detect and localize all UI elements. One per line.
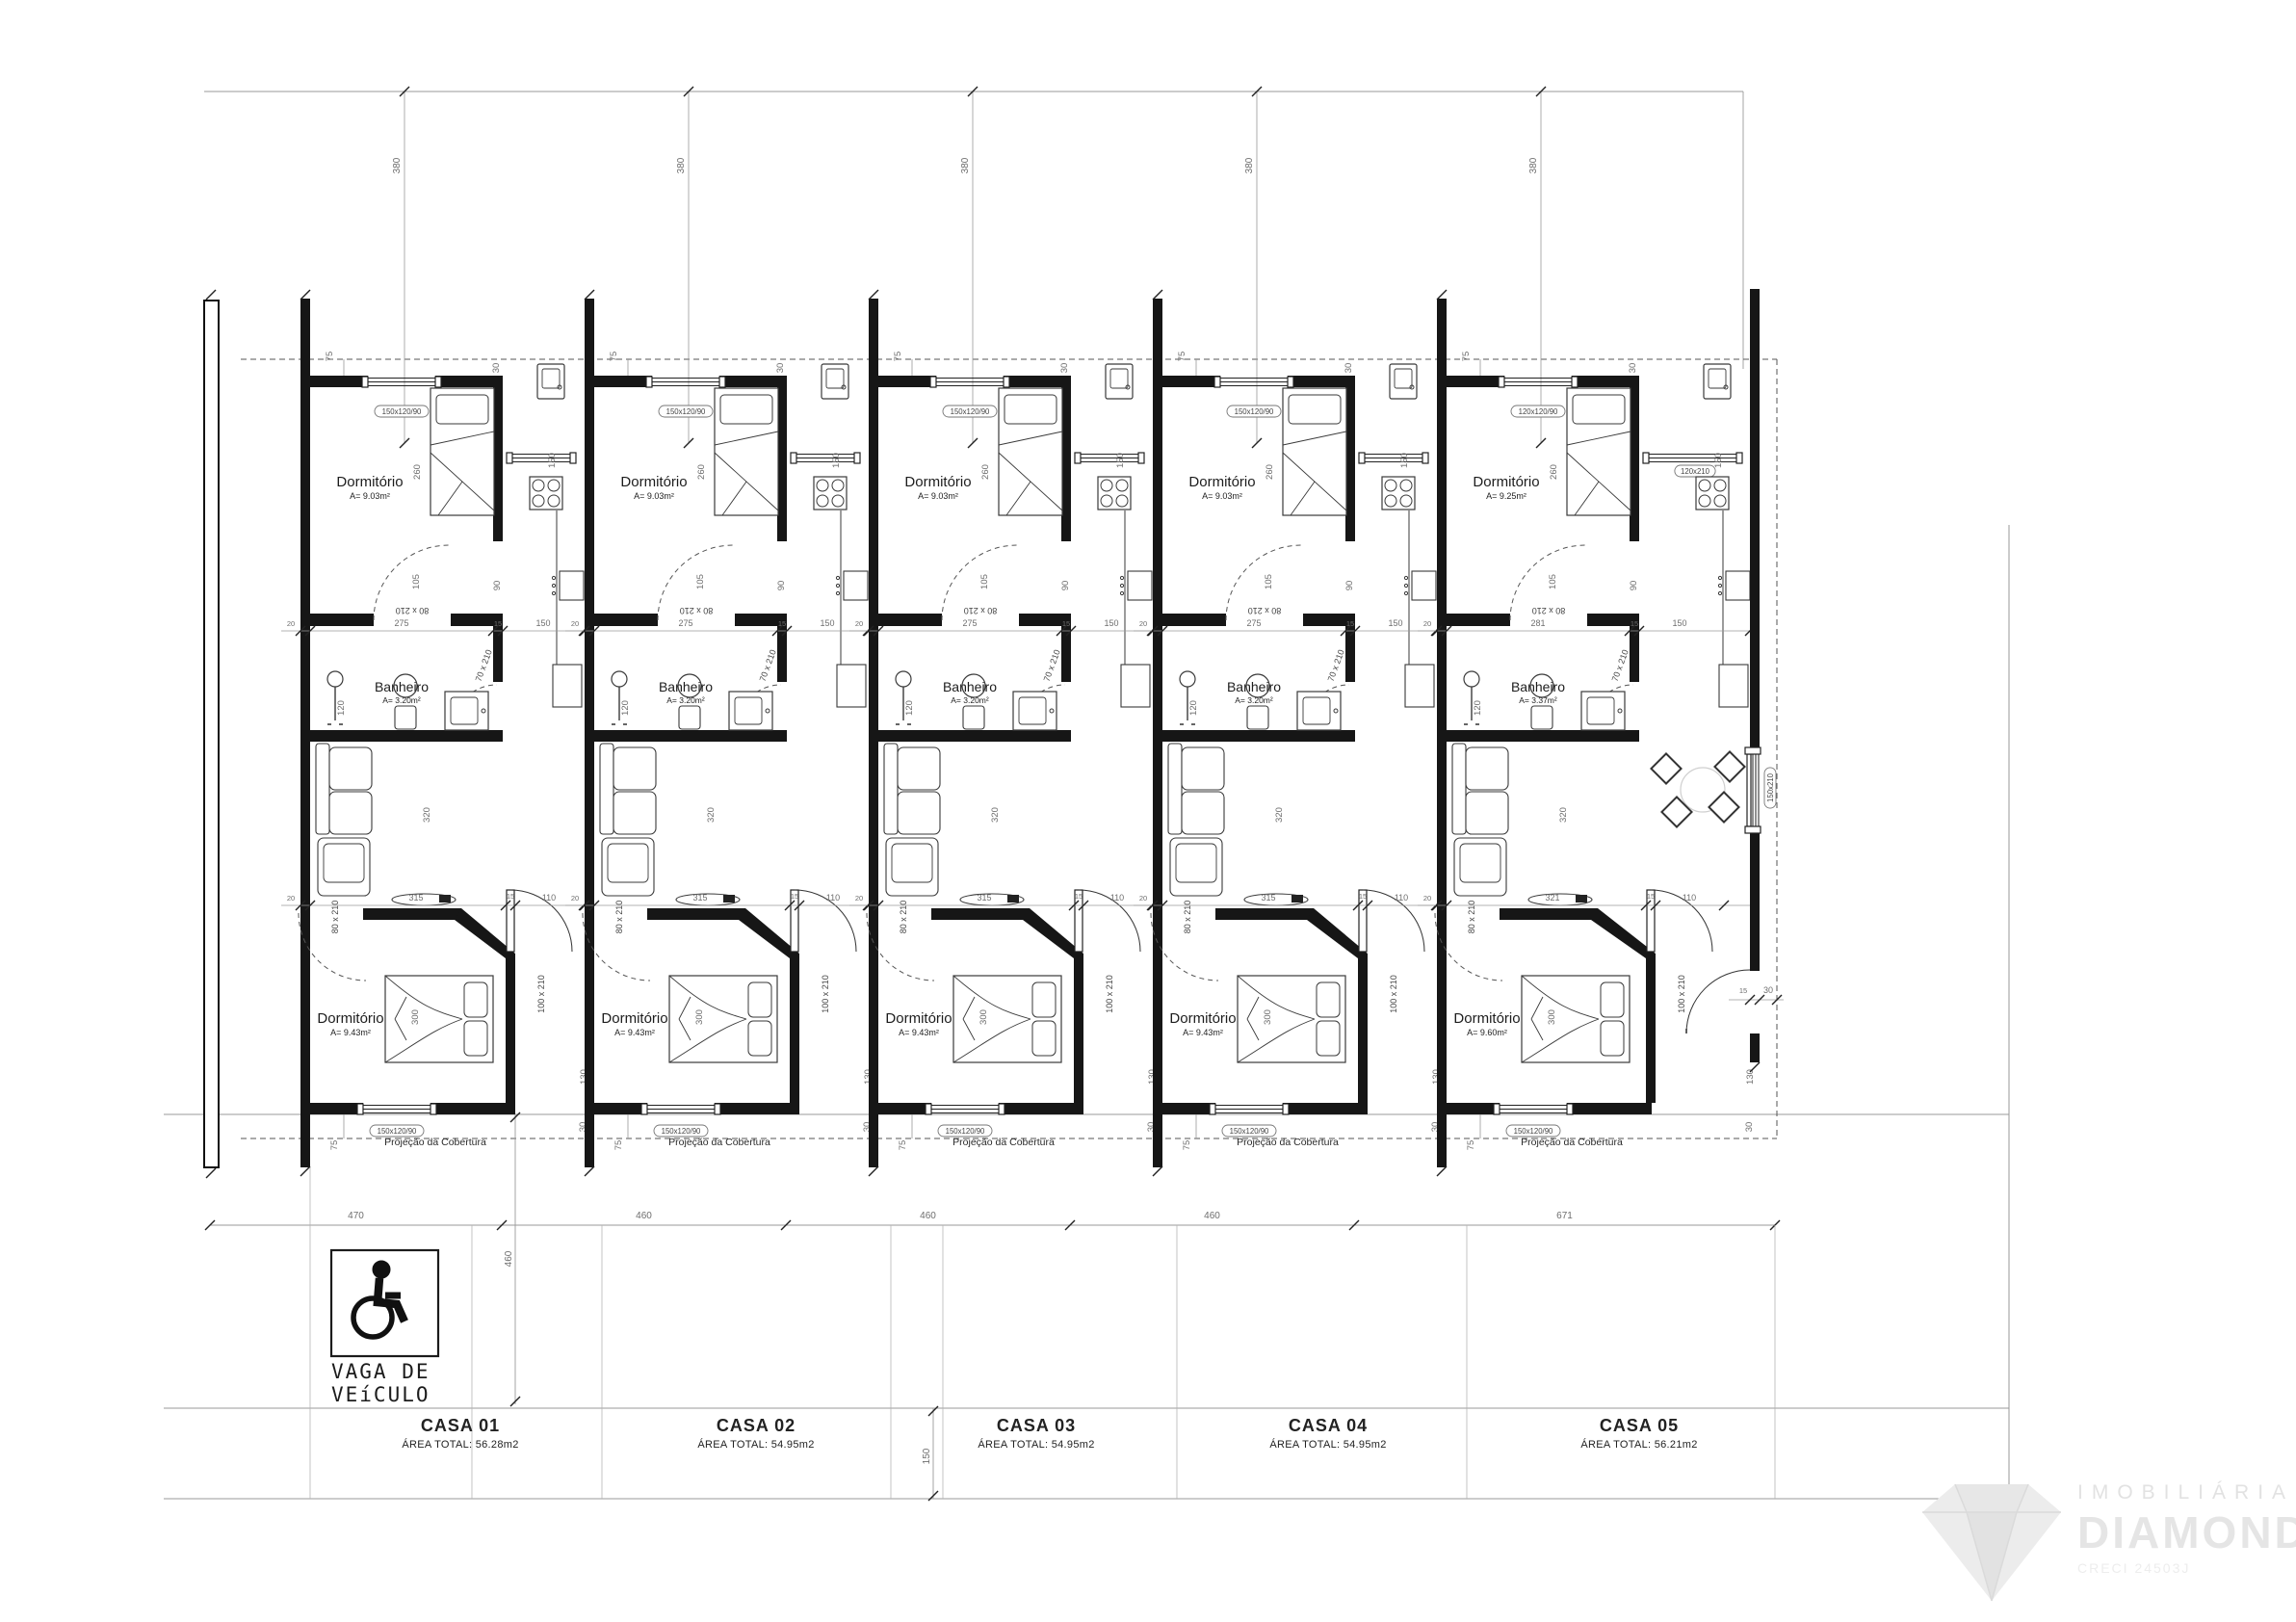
svg-text:30: 30 <box>775 363 786 374</box>
svg-text:20: 20 <box>571 894 579 903</box>
svg-text:100 x 210: 100 x 210 <box>536 975 546 1013</box>
diamond-gem-icon <box>1912 1472 2075 1616</box>
svg-text:300: 300 <box>410 1009 421 1025</box>
svg-text:80 x 210: 80 x 210 <box>1532 606 1566 615</box>
svg-text:100 x 210: 100 x 210 <box>821 975 830 1013</box>
svg-text:321: 321 <box>1545 893 1559 903</box>
casa-04-label: CASA 04 ÁREA TOTAL: 54.95m2 <box>1269 1416 1386 1451</box>
svg-text:671: 671 <box>1556 1211 1573 1221</box>
svg-text:110: 110 <box>542 893 556 903</box>
svg-text:Projeção da Cobertura: Projeção da Cobertura <box>1521 1137 1623 1148</box>
svg-text:75: 75 <box>1182 1140 1192 1151</box>
svg-text:Projeção da Cobertura: Projeção da Cobertura <box>668 1137 770 1148</box>
svg-text:Dormitório: Dormitório <box>620 474 687 490</box>
svg-text:70 x 210: 70 x 210 <box>758 648 778 683</box>
svg-text:80 x 210: 80 x 210 <box>1248 606 1282 615</box>
casa-05-label: CASA 05 ÁREA TOTAL: 56.21m2 <box>1580 1416 1697 1451</box>
svg-text:300: 300 <box>1263 1009 1273 1025</box>
svg-text:120: 120 <box>904 700 915 716</box>
svg-text:150: 150 <box>535 618 550 628</box>
svg-text:70 x 210: 70 x 210 <box>1610 648 1631 683</box>
svg-text:A= 9.03m²: A= 9.03m² <box>350 491 390 501</box>
casa-03-name: CASA 03 <box>978 1416 1094 1436</box>
floorplan-canvas: 470460460460671460150380150x120/90150x12… <box>0 0 2296 1622</box>
svg-text:30: 30 <box>1763 985 1773 995</box>
svg-text:A= 9.43m²: A= 9.43m² <box>1183 1028 1223 1037</box>
svg-text:75: 75 <box>1461 352 1472 362</box>
svg-text:281: 281 <box>1530 618 1545 628</box>
svg-text:15: 15 <box>1062 619 1070 628</box>
svg-text:A= 9.60m²: A= 9.60m² <box>1467 1028 1507 1037</box>
svg-text:275: 275 <box>394 618 408 628</box>
svg-text:80 x 210: 80 x 210 <box>964 606 998 615</box>
svg-text:275: 275 <box>962 618 977 628</box>
svg-text:Projeção da Cobertura: Projeção da Cobertura <box>952 1137 1055 1148</box>
svg-text:80 x 210: 80 x 210 <box>680 606 714 615</box>
svg-text:15: 15 <box>1346 619 1354 628</box>
svg-text:A= 9.43m²: A= 9.43m² <box>899 1028 939 1037</box>
svg-text:150: 150 <box>922 1448 932 1464</box>
casa-04-plan: 380150x120/90150x120/9080 x 21070 x 2108… <box>1134 87 1442 1176</box>
svg-text:75: 75 <box>609 352 619 362</box>
parking-sign-text: VAGA DE VEíCULO <box>331 1360 447 1406</box>
svg-text:105: 105 <box>1264 574 1274 589</box>
parking-sign-line1: VAGA DE <box>331 1360 447 1383</box>
svg-text:Dormitório: Dormitório <box>1453 1010 1520 1027</box>
casa-01-area: ÁREA TOTAL: 56.28m2 <box>402 1439 518 1451</box>
svg-text:320: 320 <box>990 807 1001 823</box>
casa-05-side-extras: 150x2101530 <box>1651 289 1784 1072</box>
svg-text:80 x 210: 80 x 210 <box>396 606 430 615</box>
svg-text:300: 300 <box>978 1009 989 1025</box>
svg-text:30: 30 <box>1744 1122 1755 1133</box>
casa-02-area: ÁREA TOTAL: 54.95m2 <box>697 1439 814 1451</box>
svg-text:15: 15 <box>1075 892 1083 901</box>
svg-text:150: 150 <box>1388 618 1402 628</box>
svg-text:150x120/90: 150x120/90 <box>382 407 422 416</box>
svg-text:30: 30 <box>1344 363 1354 374</box>
svg-text:20: 20 <box>571 619 579 628</box>
svg-text:315: 315 <box>1261 893 1275 903</box>
svg-text:150: 150 <box>831 453 842 468</box>
casa-05-area: ÁREA TOTAL: 56.21m2 <box>1580 1439 1697 1451</box>
svg-text:320: 320 <box>706 807 717 823</box>
casa-01-plan: 380150x120/90150x120/9080 x 21070 x 2108… <box>281 87 589 1176</box>
svg-text:Banheiro: Banheiro <box>659 679 713 694</box>
svg-text:470: 470 <box>348 1211 364 1221</box>
svg-text:30: 30 <box>1628 363 1638 374</box>
svg-text:30: 30 <box>1059 363 1070 374</box>
svg-text:110: 110 <box>1683 893 1696 903</box>
casa-04-name: CASA 04 <box>1269 1416 1386 1436</box>
svg-text:20: 20 <box>855 619 863 628</box>
svg-text:120: 120 <box>336 700 347 716</box>
svg-text:Banheiro: Banheiro <box>943 679 997 694</box>
svg-text:380: 380 <box>960 157 971 173</box>
svg-text:120x120/90: 120x120/90 <box>1519 407 1558 416</box>
svg-text:320: 320 <box>422 807 432 823</box>
svg-text:100 x 210: 100 x 210 <box>1677 975 1686 1013</box>
svg-text:20: 20 <box>1423 619 1431 628</box>
svg-text:Dormitório: Dormitório <box>1169 1010 1236 1027</box>
svg-text:Dormitório: Dormitório <box>1188 474 1255 490</box>
svg-text:460: 460 <box>636 1211 652 1221</box>
casa-01-name: CASA 01 <box>402 1416 518 1436</box>
svg-text:70 x 210: 70 x 210 <box>1042 648 1062 683</box>
svg-text:150: 150 <box>1104 618 1118 628</box>
svg-text:260: 260 <box>696 464 707 480</box>
svg-text:260: 260 <box>1265 464 1275 480</box>
svg-text:380: 380 <box>392 157 403 173</box>
svg-text:380: 380 <box>676 157 687 173</box>
svg-text:150x120/90: 150x120/90 <box>946 1127 985 1136</box>
svg-text:150x120/90: 150x120/90 <box>1235 407 1274 416</box>
svg-text:105: 105 <box>1548 574 1558 589</box>
svg-text:300: 300 <box>694 1009 705 1025</box>
svg-text:260: 260 <box>980 464 991 480</box>
svg-text:30: 30 <box>491 363 502 374</box>
svg-text:Dormitório: Dormitório <box>601 1010 667 1027</box>
svg-text:120: 120 <box>620 700 631 716</box>
svg-text:260: 260 <box>412 464 423 480</box>
svg-text:A= 9.43m²: A= 9.43m² <box>330 1028 371 1037</box>
svg-text:75: 75 <box>898 1140 908 1151</box>
logo-diamond-text: DIAMOND <box>2077 1506 2296 1558</box>
svg-text:A= 9.03m²: A= 9.03m² <box>1202 491 1242 501</box>
svg-text:75: 75 <box>1466 1140 1476 1151</box>
svg-text:150x120/90: 150x120/90 <box>951 407 990 416</box>
casa-03-label: CASA 03 ÁREA TOTAL: 54.95m2 <box>978 1416 1094 1451</box>
svg-text:150x120/90: 150x120/90 <box>378 1127 417 1136</box>
svg-text:150: 150 <box>820 618 834 628</box>
svg-text:105: 105 <box>979 574 990 589</box>
svg-text:70 x 210: 70 x 210 <box>1326 648 1346 683</box>
svg-text:15: 15 <box>1647 892 1655 901</box>
svg-text:15: 15 <box>1739 986 1747 995</box>
svg-text:320: 320 <box>1274 807 1285 823</box>
svg-text:Banheiro: Banheiro <box>375 679 429 694</box>
casa-04-area: ÁREA TOTAL: 54.95m2 <box>1269 1439 1386 1451</box>
svg-text:75: 75 <box>329 1140 340 1151</box>
svg-text:380: 380 <box>1244 157 1255 173</box>
svg-text:20: 20 <box>287 619 295 628</box>
svg-text:150x120/90: 150x120/90 <box>1514 1127 1553 1136</box>
svg-text:120: 120 <box>1473 700 1483 716</box>
svg-text:105: 105 <box>695 574 706 589</box>
casa-05-name: CASA 05 <box>1580 1416 1697 1436</box>
svg-text:105: 105 <box>411 574 422 589</box>
svg-text:A= 9.03m²: A= 9.03m² <box>918 491 958 501</box>
svg-text:320: 320 <box>1558 807 1569 823</box>
svg-text:20: 20 <box>1139 619 1147 628</box>
svg-text:110: 110 <box>1110 893 1124 903</box>
svg-text:A= 9.25m²: A= 9.25m² <box>1486 491 1526 501</box>
casa-01-label: CASA 01 ÁREA TOTAL: 56.28m2 <box>402 1416 518 1451</box>
diamond-logo: IMOBILIÁRIA DIAMOND CRECI 24503J <box>1912 1472 2296 1616</box>
svg-text:75: 75 <box>1177 352 1187 362</box>
svg-text:460: 460 <box>504 1250 514 1267</box>
svg-text:90: 90 <box>1629 581 1639 591</box>
svg-text:100 x 210: 100 x 210 <box>1105 975 1114 1013</box>
svg-text:100 x 210: 100 x 210 <box>1389 975 1398 1013</box>
svg-text:120x210: 120x210 <box>1681 467 1710 476</box>
svg-text:260: 260 <box>1549 464 1559 480</box>
svg-text:300: 300 <box>1547 1009 1557 1025</box>
svg-text:A= 9.43m²: A= 9.43m² <box>614 1028 655 1037</box>
svg-text:15: 15 <box>791 892 798 901</box>
svg-text:70 x 210: 70 x 210 <box>474 648 494 683</box>
svg-text:150: 150 <box>1115 453 1126 468</box>
svg-text:90: 90 <box>492 581 503 591</box>
svg-text:150x120/90: 150x120/90 <box>666 407 706 416</box>
svg-text:15: 15 <box>1359 892 1367 901</box>
svg-text:75: 75 <box>325 352 335 362</box>
svg-text:150x120/90: 150x120/90 <box>662 1127 701 1136</box>
svg-text:90: 90 <box>1344 581 1355 591</box>
parking-sign-line2: VEíCULO <box>331 1383 447 1406</box>
svg-text:Banheiro: Banheiro <box>1511 679 1565 694</box>
casa-02-plan: 380150x120/90150x120/9080 x 21070 x 2108… <box>565 87 874 1176</box>
svg-text:Dormitório: Dormitório <box>336 474 403 490</box>
svg-text:Dormitório: Dormitório <box>885 1010 952 1027</box>
svg-text:20: 20 <box>1139 894 1147 903</box>
svg-text:Dormitório: Dormitório <box>904 474 971 490</box>
svg-text:120: 120 <box>1188 700 1199 716</box>
casa-03-plan: 380150x120/90150x120/9080 x 21070 x 2108… <box>849 87 1158 1176</box>
svg-text:75: 75 <box>893 352 903 362</box>
svg-text:Dormitório: Dormitório <box>317 1010 383 1027</box>
svg-text:315: 315 <box>692 893 707 903</box>
svg-text:315: 315 <box>408 893 423 903</box>
svg-text:A= 9.03m²: A= 9.03m² <box>634 491 674 501</box>
svg-text:150: 150 <box>1713 453 1724 468</box>
svg-text:150: 150 <box>547 453 558 468</box>
svg-text:20: 20 <box>855 894 863 903</box>
logo-creci-text: CRECI 24503J <box>2077 1560 2296 1576</box>
svg-text:20: 20 <box>287 894 295 903</box>
svg-text:380: 380 <box>1528 157 1539 173</box>
svg-text:460: 460 <box>920 1211 936 1221</box>
svg-text:Banheiro: Banheiro <box>1227 679 1281 694</box>
svg-text:110: 110 <box>826 893 840 903</box>
svg-text:460: 460 <box>1204 1211 1220 1221</box>
svg-text:275: 275 <box>678 618 692 628</box>
svg-text:15: 15 <box>778 619 786 628</box>
svg-text:15: 15 <box>1631 619 1638 628</box>
casa-05-plan: 380120x120/90150x120/90120x21080 x 21070… <box>1418 87 1756 1176</box>
svg-text:150x120/90: 150x120/90 <box>1230 1127 1269 1136</box>
svg-text:110: 110 <box>1395 893 1408 903</box>
svg-text:15: 15 <box>507 892 514 901</box>
svg-text:150: 150 <box>1672 618 1686 628</box>
svg-text:Projeção da Cobertura: Projeção da Cobertura <box>384 1137 486 1148</box>
svg-text:20: 20 <box>1423 894 1431 903</box>
logo-imobiliaria-text: IMOBILIÁRIA <box>2077 1481 2296 1504</box>
svg-text:90: 90 <box>776 581 787 591</box>
svg-text:315: 315 <box>977 893 991 903</box>
svg-text:15: 15 <box>494 619 502 628</box>
svg-text:90: 90 <box>1060 581 1071 591</box>
casa-03-area: ÁREA TOTAL: 54.95m2 <box>978 1439 1094 1451</box>
casa-02-label: CASA 02 ÁREA TOTAL: 54.95m2 <box>697 1416 814 1451</box>
svg-text:Dormitório: Dormitório <box>1473 474 1539 490</box>
svg-text:150x210: 150x210 <box>1766 772 1775 802</box>
svg-text:150: 150 <box>1399 453 1410 468</box>
svg-text:75: 75 <box>613 1140 624 1151</box>
svg-text:275: 275 <box>1246 618 1261 628</box>
casa-02-name: CASA 02 <box>697 1416 814 1436</box>
svg-text:Projeção da Cobertura: Projeção da Cobertura <box>1237 1137 1339 1148</box>
